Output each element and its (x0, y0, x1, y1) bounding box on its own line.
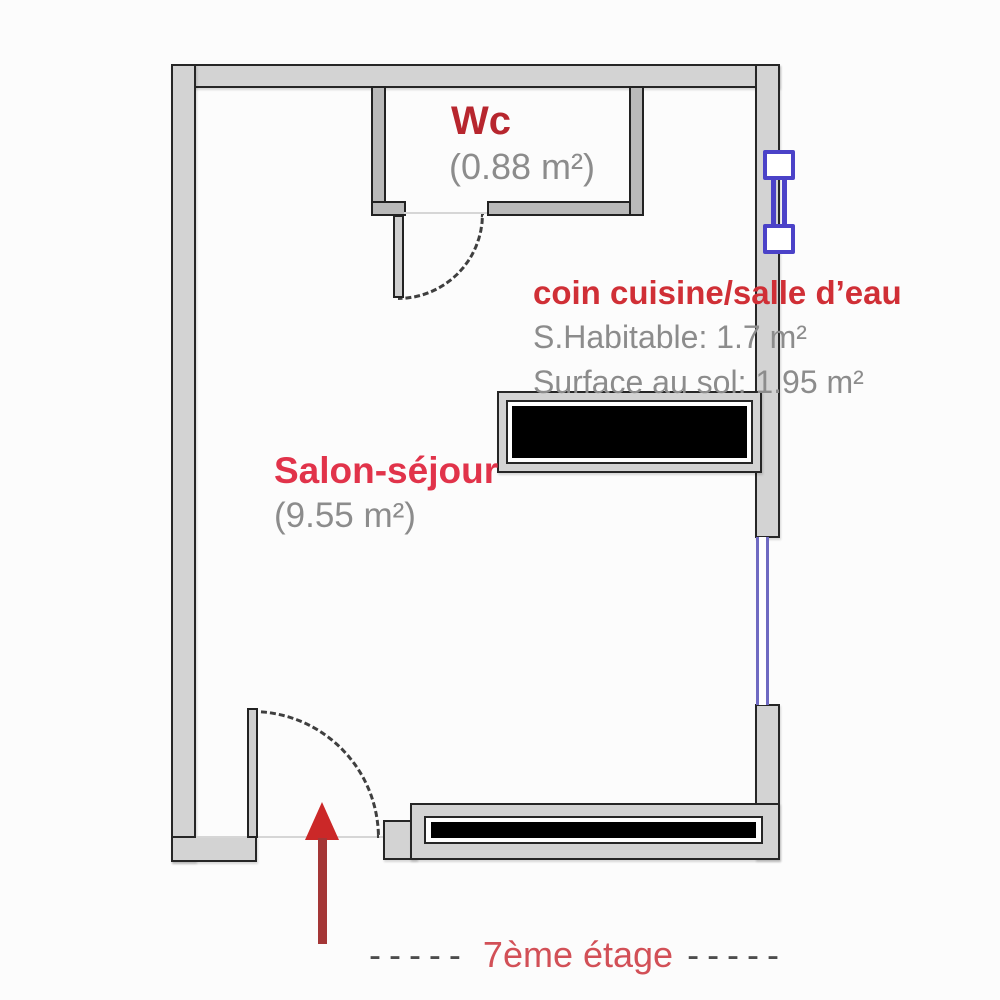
salon-room-label: Salon-séjour (274, 452, 498, 491)
kitchen-habitable-area: S.Habitable: 1.7 m² (533, 321, 807, 355)
long-window-icon (756, 537, 769, 705)
wc-door-swing-arc-icon (398, 214, 484, 300)
entrance-door-leaf (247, 708, 258, 838)
floor-plan-canvas: Wc (0.88 m²) coin cuisine/salle d’eau S.… (0, 0, 1000, 1000)
salon-room-area: (9.55 m²) (274, 498, 416, 535)
small-window-icon (763, 150, 795, 254)
caption-dashes-left: ----- (369, 934, 469, 975)
outer-wall-left (171, 64, 196, 862)
wc-room-label: Wc (451, 100, 511, 142)
outer-wall-top (171, 64, 780, 88)
kitchen-counter-top-icon (512, 406, 747, 458)
window-pane-bottom-icon (763, 224, 795, 254)
wc-wall-left (371, 86, 386, 216)
window-pane-top-icon (763, 150, 795, 180)
caption-dashes-right: ----- (687, 934, 787, 975)
outer-wall-bottom-left (171, 836, 257, 862)
wc-wall-bottom-right (487, 201, 644, 216)
floor-caption: -----7ème étage----- (328, 936, 828, 974)
window-connector-icon (771, 178, 787, 226)
kitchen-floor-area: Surface au sol: 1.95 m² (533, 366, 864, 400)
entrance-arrow-shaft (318, 838, 327, 944)
wc-door-leaf (393, 215, 404, 298)
radiator-bar-icon (431, 822, 756, 838)
wc-room-area: (0.88 m²) (449, 148, 595, 186)
caption-label: 7ème étage (483, 934, 673, 975)
wc-wall-right (629, 86, 644, 216)
entrance-arrow-icon (305, 802, 339, 840)
kitchen-room-label: coin cuisine/salle d’eau (533, 276, 902, 311)
